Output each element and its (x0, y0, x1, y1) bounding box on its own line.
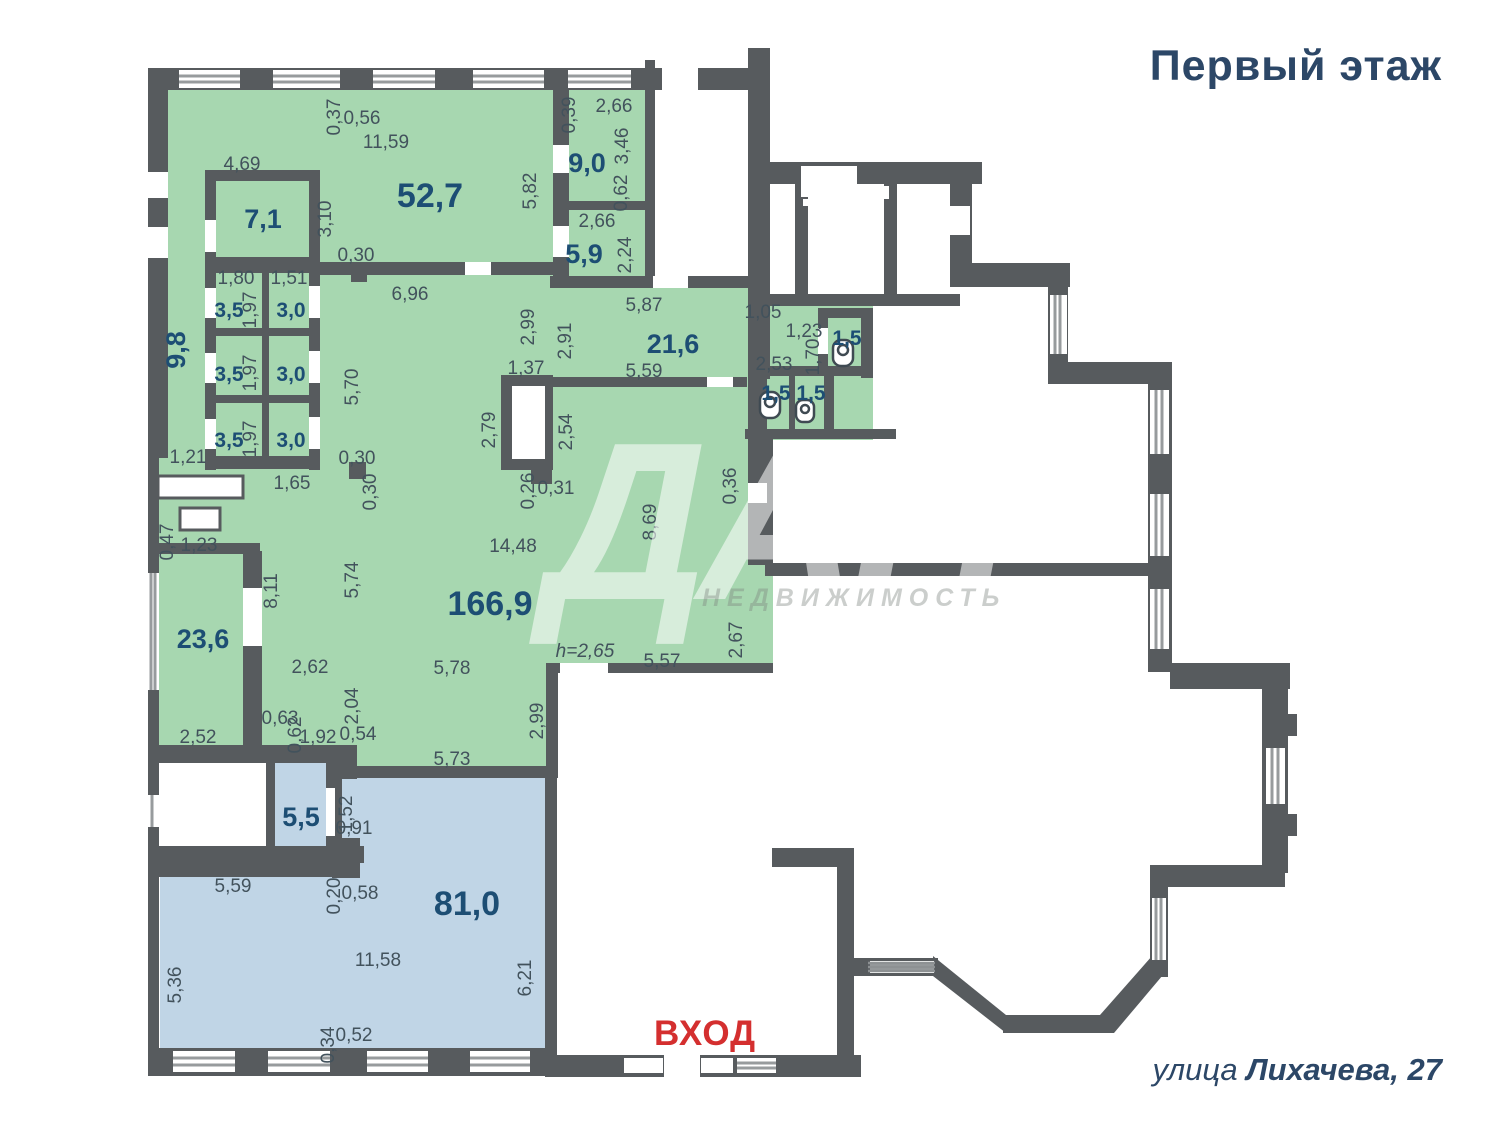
window (148, 573, 159, 690)
dimension-label: 5,70 (342, 369, 363, 406)
page-title: Первый этаж (1150, 42, 1442, 91)
entrance-label: ВХОД (640, 1014, 770, 1054)
stairwell (655, 60, 748, 276)
dimension-label: 5,74 (342, 561, 363, 598)
window (173, 1051, 235, 1072)
dimension-label: 0,56 (344, 108, 381, 129)
window (1150, 589, 1169, 649)
window (1050, 295, 1067, 354)
dimension-label: 2,99 (518, 309, 539, 346)
dimension-label: 8,11 (261, 573, 282, 609)
room-7-1: 7,1 (244, 204, 282, 234)
window (1152, 898, 1166, 960)
dimension-label: 0,62 (611, 175, 632, 212)
window (1150, 494, 1169, 556)
window (1150, 390, 1169, 454)
dimension-label: 8,69 (640, 504, 661, 541)
dimension-label: 6,96 (392, 284, 429, 305)
address-prefix: улица (1152, 1052, 1246, 1087)
room-1-5-b: 1,5 (761, 382, 791, 405)
window (273, 70, 340, 88)
window (148, 172, 168, 198)
dimension-label: 0,91 (336, 818, 373, 839)
address-caption: улица Лихачева, 27 (1152, 1052, 1442, 1088)
dimension-label: 3,10 (315, 201, 336, 238)
room-1-5-c: 1,5 (796, 382, 826, 405)
dimension-label: h=2,65 (556, 641, 615, 662)
floor-plan-drawing: 52,7166,981,07,19,05,921,623,65,59,83,53… (0, 0, 1500, 1125)
dimension-label: 3,46 (612, 128, 633, 165)
room-1-5-a: 1,5 (832, 327, 862, 350)
dimension-label: 5,59 (215, 876, 252, 897)
white-room-next-to-5-5 (159, 763, 266, 848)
dimension-label: 0,36 (720, 468, 741, 505)
window (624, 1058, 663, 1073)
dimension-label: 5,78 (434, 658, 471, 679)
dimension-label: 1,65 (274, 473, 311, 494)
dimension-label: 0,37 (324, 99, 345, 136)
dimension-label: 0,39 (559, 97, 580, 134)
dimension-label: 0,58 (342, 883, 379, 904)
window (179, 70, 240, 88)
dimension-label: 1,05 (745, 302, 782, 323)
window (473, 70, 544, 88)
dimension-label: 2,91 (555, 323, 576, 360)
room-5-5: 5,5 (282, 802, 320, 832)
room-23-6: 23,6 (177, 624, 230, 654)
floor-plan-page: { "header": { "title": "Первый этаж" }, … (0, 0, 1500, 1125)
dimension-label: 1,80 (218, 268, 255, 289)
dimension-label: 0,30 (339, 448, 376, 469)
room-9-8: 9,8 (161, 331, 191, 369)
window (701, 1058, 733, 1073)
window (367, 1051, 428, 1072)
window (1266, 748, 1285, 804)
room-5-9: 5,9 (565, 239, 603, 269)
dimension-label: 1,70 (803, 339, 824, 376)
dimension-label: 2,53 (756, 354, 793, 375)
dimension-label: 2,99 (527, 703, 548, 740)
dimension-label: 2,66 (596, 96, 633, 117)
dimension-label: 0,30 (360, 474, 381, 511)
dimension-label: 2,04 (342, 687, 363, 724)
dimension-label: 5,73 (434, 749, 471, 770)
dimension-label: 0,52 (336, 1025, 373, 1046)
room-21-6: 21,6 (647, 329, 700, 359)
window (737, 1058, 776, 1073)
window (148, 227, 168, 258)
dimension-label: 2,54 (556, 413, 577, 450)
dimension-label: 11,58 (355, 950, 401, 971)
dimension-label: 0,54 (340, 724, 377, 745)
room-3-0-a: 3,0 (276, 299, 305, 322)
dimension-label: 1,97 (240, 355, 261, 392)
dimension-label: 5,59 (626, 361, 663, 382)
dimension-label: 1,97 (240, 292, 261, 329)
window (148, 795, 159, 827)
dimension-label: 5,87 (626, 295, 663, 316)
address-street: Лихачева, 27 (1246, 1052, 1442, 1087)
dimension-label: 1,23 (181, 535, 218, 556)
window (470, 1051, 530, 1072)
dimension-label: 11,59 (363, 132, 409, 153)
window (373, 70, 435, 88)
dimension-label: 0,31 (538, 478, 575, 499)
room-9-0: 9,0 (568, 148, 606, 178)
room-166-9: 166,9 (447, 585, 532, 623)
dimension-label: 2,66 (579, 211, 616, 232)
dimension-label: 5,57 (644, 651, 681, 672)
room-81-0: 81,0 (434, 885, 500, 923)
entrance-steps (868, 963, 935, 971)
dimension-label: 0,26 (518, 473, 539, 510)
dimension-label: 0,30 (338, 245, 375, 266)
dimension-label: 2,62 (292, 657, 329, 678)
dimension-label: 2,79 (479, 412, 500, 449)
window (568, 70, 631, 88)
dimension-label: 1,51 (271, 268, 308, 289)
dimension-label: 4,69 (224, 154, 261, 175)
dimension-label: 0,47 (157, 524, 178, 561)
dimension-label: 6,21 (515, 960, 536, 997)
room-3-0-b: 3,0 (276, 363, 305, 386)
dimension-label: 5,82 (520, 173, 541, 210)
room-52-7: 52,7 (397, 177, 463, 215)
dimension-label: 2,24 (615, 236, 636, 273)
dimension-label: 5,36 (165, 967, 186, 1004)
dimension-label: 14,48 (489, 536, 537, 557)
dimension-label: 1,37 (508, 358, 545, 379)
dimension-label: 1,97 (240, 421, 261, 458)
dimension-label: 2,52 (180, 727, 217, 748)
room-3-0-c: 3,0 (276, 429, 305, 452)
dimension-label: 1,92 (300, 727, 337, 748)
dimension-label: 2,67 (726, 622, 747, 659)
dimension-label: 1,21 (170, 447, 207, 468)
